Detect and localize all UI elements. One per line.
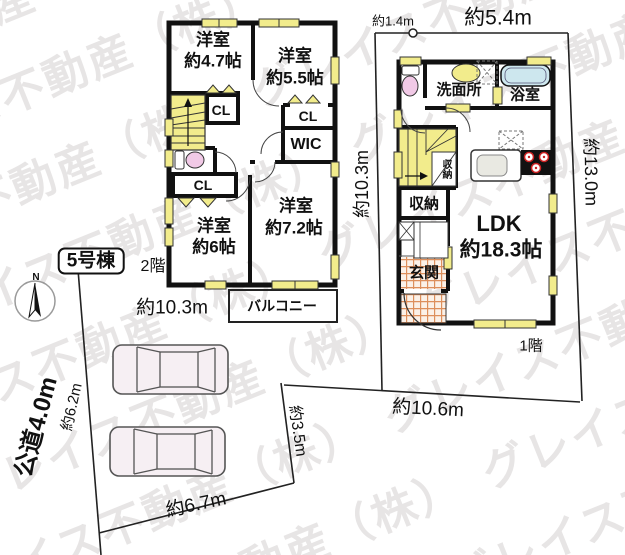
room-size-yoshitsu47: 約4.7帖 xyxy=(184,53,242,70)
compass-icon xyxy=(15,281,55,321)
staircase-2f xyxy=(171,95,205,150)
entrance-label: 玄関 xyxy=(409,266,439,281)
closet-label: CL xyxy=(194,178,213,192)
room-label-yoshitsu55: 洋室 xyxy=(278,48,312,65)
storage-label: 収納 xyxy=(409,197,439,212)
room-label-yoshitsu6: 洋室 xyxy=(197,218,231,235)
measure-floor2-width: 約10.3m xyxy=(136,299,208,318)
floor1-label: 1階 xyxy=(519,339,542,354)
room-size-yoshitsu6: 約6帖 xyxy=(192,239,235,256)
room-size-yoshitsu72: 約7.2帖 xyxy=(265,220,323,237)
boundary-point-marker xyxy=(409,29,417,37)
parked-car xyxy=(110,427,225,476)
measure-south-width: 約10.6m xyxy=(392,398,465,421)
washstand-sink xyxy=(452,64,480,82)
floor2-label: 2階 xyxy=(141,259,166,275)
ldk-size-label: 約18.3帖 xyxy=(460,240,543,261)
balcony-label: バルコニー xyxy=(247,299,317,313)
closet-label: CL xyxy=(212,103,231,117)
ldk-label: LDK xyxy=(476,213,521,235)
kitchen-counter xyxy=(471,150,553,181)
stair-storage-label: 収納 xyxy=(440,159,450,179)
toilet-2f xyxy=(175,151,204,169)
wic-label: WIC xyxy=(290,137,321,153)
room-label-yoshitsu72: 洋室 xyxy=(279,198,313,215)
building-number-badge: 5号棟 xyxy=(58,248,125,275)
toilet-1f xyxy=(402,66,419,96)
compass-north-label: N xyxy=(32,273,39,283)
room-size-yoshitsu55: 約5.5帖 xyxy=(266,70,324,87)
measure-top-offset: 約1.4m xyxy=(372,15,414,28)
measure-mid-depth: 約10.3m xyxy=(353,150,371,218)
room-label-yoshitsu47: 洋室 xyxy=(196,32,230,49)
bathroom-label: 浴室 xyxy=(510,88,540,103)
entrance-closet xyxy=(399,222,448,258)
floorplan-page: グレイス不動産（株） グレイス不動産（株） グレイス不動産（株） グレイス不動産… xyxy=(0,0,625,555)
parked-car xyxy=(113,345,228,394)
closet-label: CL xyxy=(299,109,318,123)
bathtub xyxy=(501,65,550,86)
bath-door-marker xyxy=(493,87,502,104)
measure-right-depth: 約13.0m xyxy=(581,138,600,206)
washroom-label: 洗面所 xyxy=(436,83,481,98)
measure-top-width: 約5.4m xyxy=(464,8,532,29)
